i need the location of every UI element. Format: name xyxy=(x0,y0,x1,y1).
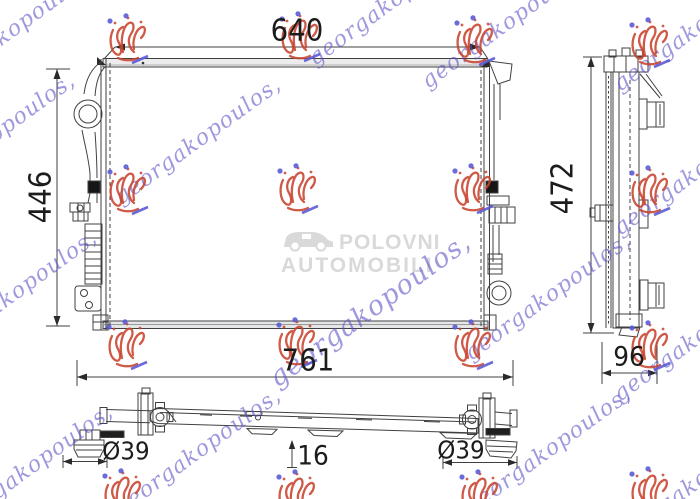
georgakopoulos-stamp-icon xyxy=(629,165,670,215)
dim-label-core-height: 446 xyxy=(24,171,59,224)
georgakopoulos-stamp-icon xyxy=(107,13,148,63)
georgakopoulos-stamp-icon xyxy=(102,468,143,499)
georgakopoulos-stamp-icon xyxy=(629,17,670,67)
dim-label-pipe-dia-left: Ø39 xyxy=(102,437,149,466)
dim-label-overall-depth: 96 xyxy=(613,342,645,373)
georgakopoulos-stamp-icon xyxy=(277,163,318,213)
georgakopoulos-stamp-icon xyxy=(454,15,495,65)
georgakopoulos-stamp-icon xyxy=(452,163,493,213)
dim-label-overall-height: 472 xyxy=(546,162,581,215)
technical-drawing-canvas: POLOVNI AUTOMOBILI xyxy=(0,0,700,499)
dim-label-core-thickness: 16 xyxy=(297,441,329,472)
georgakopoulos-stamp-icon xyxy=(452,319,493,369)
georgakopoulos-stamp-icon xyxy=(629,466,670,499)
dim-label-overall-width: 761 xyxy=(282,344,335,379)
dim-label-pipe-dia-right: Ø39 xyxy=(437,436,484,465)
stamp-watermark-layer xyxy=(0,0,700,499)
dim-label-core-width: 640 xyxy=(271,14,324,49)
georgakopoulos-stamp-icon xyxy=(106,319,147,369)
georgakopoulos-stamp-icon xyxy=(107,164,148,214)
georgakopoulos-stamp-icon xyxy=(459,469,500,499)
georgakopoulos-stamp-icon xyxy=(276,469,317,499)
